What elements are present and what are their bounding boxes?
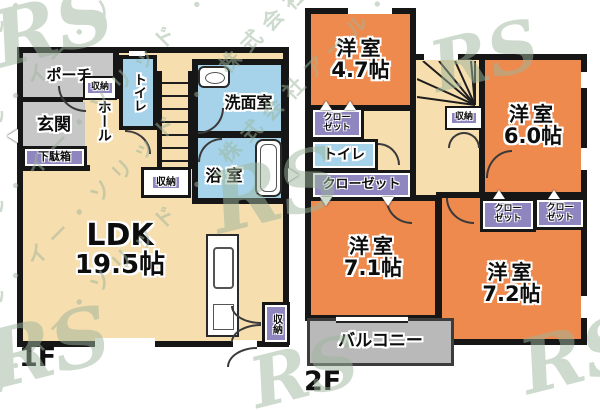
- storage-ldk-label: 収納: [271, 314, 282, 334]
- stairs-window: [424, 54, 458, 60]
- bathtub: [255, 139, 282, 197]
- bath-window-marker: [288, 168, 299, 182]
- washroom-sink: [198, 66, 230, 88]
- closet-d2: クロー ゼット: [537, 200, 583, 227]
- closet-d1-line2: ゼット: [494, 215, 521, 225]
- balcony-door: [336, 315, 408, 323]
- entrance: 玄関: [23, 102, 85, 149]
- floor1-label: 1F: [19, 342, 56, 373]
- ldk-exterior-door-arc: [227, 347, 257, 367]
- ldk-size: 19.5帖: [40, 252, 200, 279]
- floorplan-canvas: ポーチ 玄関 下駄箱 ホール 収納 トイレ 洗面室 浴室 収納 LDK: [0, 0, 600, 410]
- storage-mid-label: 収納: [152, 176, 180, 189]
- room-7-2-size: 7.2帖: [482, 283, 540, 305]
- shoe-cabinet: 下駄箱: [25, 149, 84, 166]
- shoe-cabinet-label: 下駄箱: [38, 151, 71, 163]
- room-6-0: 洋室 6.0帖: [479, 54, 587, 198]
- hall-closet: 収納: [83, 76, 117, 100]
- room-7-1-size: 7.1帖: [344, 257, 402, 279]
- storage-2f-label: 収納: [451, 112, 477, 124]
- marker-closet-d2: [548, 190, 560, 199]
- room-6-0-name: 洋室: [509, 104, 557, 125]
- storage-ldk: 収納: [265, 305, 287, 342]
- room-7-1-name: 洋室: [349, 236, 397, 257]
- ldk-name: LDK: [40, 220, 200, 252]
- entrance-label: 玄関: [37, 117, 71, 135]
- hall-closet-label: 収納: [87, 82, 113, 94]
- closet-small-line2: ゼット: [323, 124, 350, 134]
- room-7-1: 洋室 7.1帖: [305, 195, 441, 321]
- room-6-0-window-a: [581, 72, 587, 88]
- toilet-2f-label: トイレ: [323, 148, 365, 163]
- entrance-door-marker: [7, 129, 18, 143]
- kitchen-counter: [206, 234, 239, 337]
- hall-label: ホール: [96, 100, 111, 170]
- storage-mid-1f: 収納: [141, 167, 191, 198]
- ldk-window-bottom-2: [233, 340, 257, 347]
- room-4-7-name: 洋室: [337, 38, 385, 59]
- balcony: バルコニー: [307, 318, 454, 366]
- room-4-7-size: 4.7帖: [331, 59, 389, 81]
- closet-d1: クロー ゼット: [483, 201, 533, 229]
- room-4-7-window: [348, 8, 392, 14]
- kitchen-sink: [213, 247, 234, 289]
- toilet-window: [129, 51, 145, 56]
- closet-wide: クローゼット: [313, 173, 410, 197]
- bathroom-label: 浴室: [205, 168, 247, 185]
- room-7-2-name: 洋室: [488, 262, 536, 283]
- marker-closet-d1: [493, 190, 505, 199]
- washroom-label: 洗面室: [224, 95, 272, 112]
- floor2-label: 2F: [304, 366, 341, 397]
- room-4-7: 洋室 4.7帖: [305, 8, 416, 111]
- marker-closet-wide-b: [382, 197, 394, 206]
- closet-wide-label: クローゼット: [322, 178, 400, 192]
- closet-small: クロー ゼット: [313, 110, 361, 137]
- stairs-1f: [157, 71, 193, 169]
- closet-d2-line2: ゼット: [546, 214, 573, 224]
- marker-closet-wide-a: [320, 197, 332, 206]
- balcony-label: バルコニー: [338, 333, 423, 351]
- room-6-0-window-b: [581, 148, 587, 170]
- toilet-1f: トイレ: [119, 55, 157, 130]
- ldk: LDK 19.5帖: [40, 220, 200, 279]
- marker-closet-small-b: [344, 101, 356, 110]
- stairs-2f: [417, 61, 479, 106]
- room-7-2-window: [581, 296, 587, 318]
- toilet-2f: トイレ: [313, 142, 375, 168]
- storage-2f: 収納: [445, 106, 483, 130]
- room-6-0-size: 6.0帖: [504, 125, 562, 147]
- toilet-1f-label: トイレ: [131, 73, 145, 112]
- ldk-window-bottom: [95, 338, 155, 347]
- marker-closet-small-a: [320, 101, 332, 110]
